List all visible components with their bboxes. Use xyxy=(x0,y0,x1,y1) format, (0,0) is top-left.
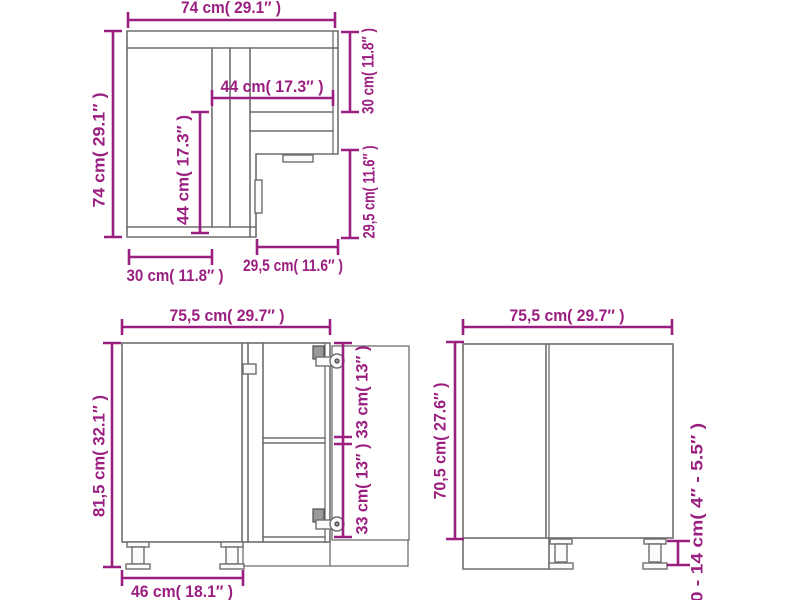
dim-front-base-width: 46 cm( 18.1″ ) xyxy=(122,570,243,600)
top-right-depth-label: 30 cm( 11.8″ ) xyxy=(359,28,378,114)
dim-side-width: 75,5 cm( 29.7″ ) xyxy=(463,306,672,335)
dim-front-width: 75,5 cm( 29.7″ ) xyxy=(122,306,330,335)
top-bottom-left-label: 30 cm( 11.8″ ) xyxy=(127,266,224,285)
top-view-door-handle-right xyxy=(283,155,313,162)
side-width-label: 75,5 cm( 29.7″ ) xyxy=(510,306,625,325)
side-view-dimensions: 75,5 cm( 29.7″ ) 70,5 cm( 27.6″ ) 10 - 1… xyxy=(431,306,707,600)
side-right-leg xyxy=(643,539,667,569)
dim-front-height: 81,5 cm( 32.1″ ) xyxy=(90,343,122,567)
hinge-top-icon xyxy=(313,346,344,368)
front-middle-leg xyxy=(220,542,244,569)
top-right-lower-label: 29,5 cm( 11.6″ ) xyxy=(360,146,379,239)
front-width-label: 75,5 cm( 29.7″ ) xyxy=(170,306,285,325)
side-view-base-panel xyxy=(463,538,549,569)
side-left-leg xyxy=(549,539,573,569)
top-inner-depth-label: 44 cm( 17.3″ ) xyxy=(174,115,193,225)
dim-front-compartments: 33 cm( 13″ ) 33 cm( 13″ ) xyxy=(334,343,372,537)
front-view-door-handle xyxy=(243,364,256,374)
top-view-dimensions: 74 cm( 29.1″ ) 74 cm( 29.1″ ) 30 cm( 11.… xyxy=(90,0,379,285)
top-view-outline xyxy=(127,31,338,237)
front-view-base-panel xyxy=(243,540,408,566)
diagram-canvas: 74 cm( 29.1″ ) 74 cm( 29.1″ ) 30 cm( 11.… xyxy=(0,0,800,600)
dimension-diagram: 74 cm( 29.1″ ) 74 cm( 29.1″ ) 30 cm( 11.… xyxy=(0,0,800,600)
dim-top-left-height: 74 cm( 29.1″ ) xyxy=(90,31,123,237)
front-upper-compartment-label: 33 cm( 13″ ) xyxy=(353,346,372,439)
front-left-leg xyxy=(126,542,150,569)
hinge-bottom-icon xyxy=(313,509,344,531)
dim-top-bottom-left: 30 cm( 11.8″ ) xyxy=(127,249,224,285)
dim-top-width: 74 cm( 29.1″ ) xyxy=(128,0,335,28)
side-view-drawing xyxy=(463,344,673,569)
side-view-body xyxy=(463,344,673,538)
front-height-label: 81,5 cm( 32.1″ ) xyxy=(90,395,109,517)
dim-top-right-lower: 29,5 cm( 11.6″ ) xyxy=(341,146,379,239)
top-view-door-handle-left xyxy=(255,180,262,213)
dim-side-height: 70,5 cm( 27.6″ ) xyxy=(431,342,465,539)
top-left-height-label: 74 cm( 29.1″ ) xyxy=(90,93,109,208)
dim-top-bottom-right: 29,5 cm( 11.6″ ) xyxy=(243,239,343,275)
top-view-drawing xyxy=(127,31,338,237)
dim-top-right-depth: 30 cm( 11.8″ ) xyxy=(341,28,378,114)
front-base-width-label: 46 cm( 18.1″ ) xyxy=(131,582,233,600)
side-leg-height-label: 10 - 14 cm( 4″ - 5.5″ ) xyxy=(688,423,707,600)
dim-top-inner-depth: 44 cm( 17.3″ ) xyxy=(174,112,210,233)
top-bottom-right-label: 29,5 cm( 11.6″ ) xyxy=(243,256,343,275)
top-width-label: 74 cm( 29.1″ ) xyxy=(181,0,281,17)
side-height-label: 70,5 cm( 27.6″ ) xyxy=(431,383,450,500)
top-inner-width-label: 44 cm( 17.3″ ) xyxy=(221,77,324,96)
front-lower-compartment-label: 33 cm( 13″ ) xyxy=(353,444,372,535)
